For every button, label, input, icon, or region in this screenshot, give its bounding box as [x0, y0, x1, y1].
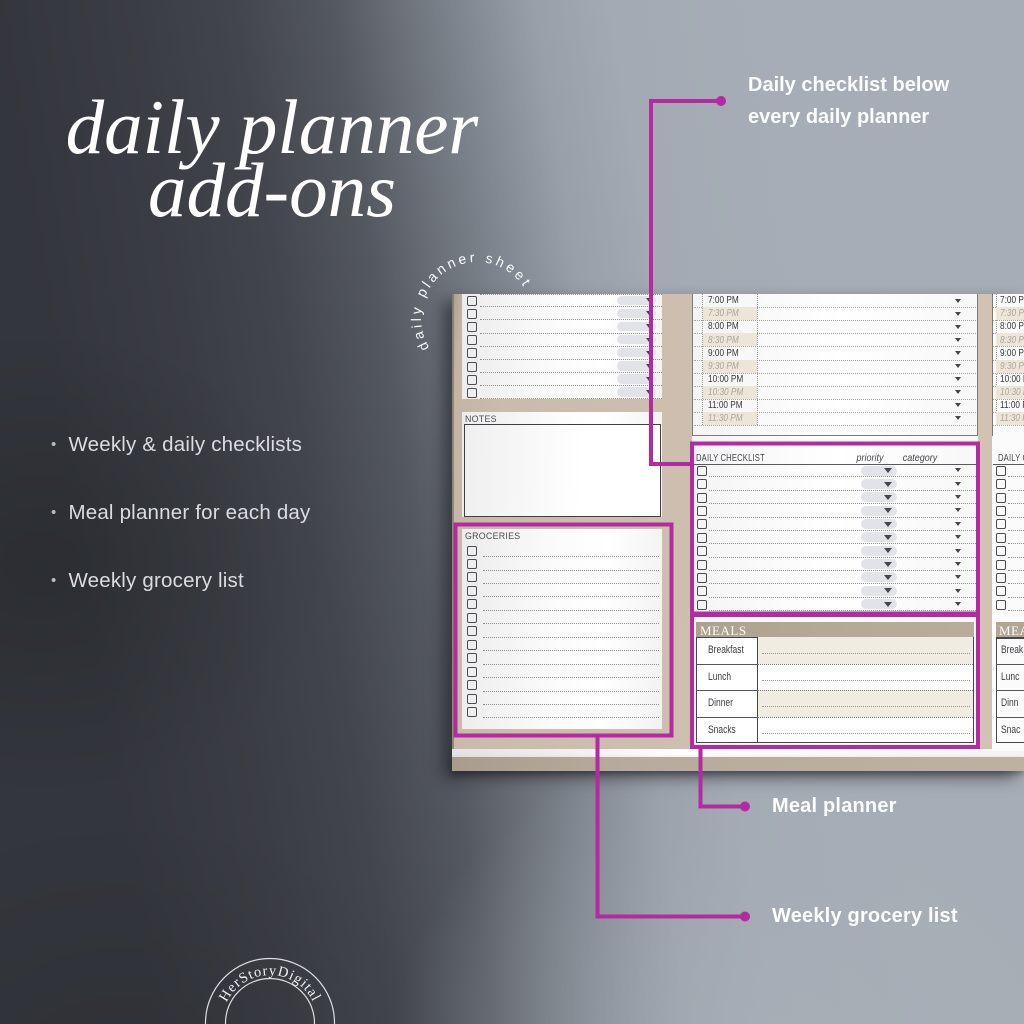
svg-text:HerStoryDigital: HerStoryDigital: [216, 963, 324, 1005]
svg-text:daily planner sheet: daily planner sheet: [408, 249, 536, 354]
